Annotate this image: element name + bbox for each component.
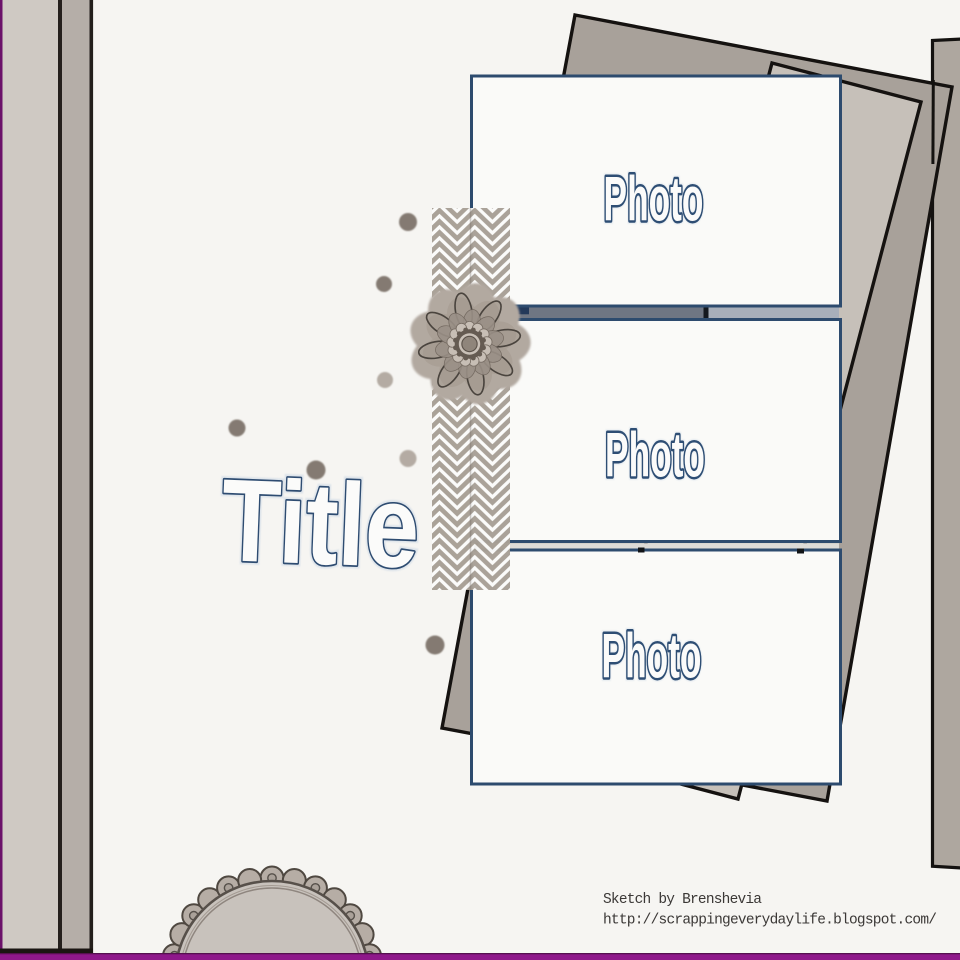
- svg-text:Photo: Photo: [605, 420, 705, 490]
- svg-text:Photo: Photo: [602, 621, 702, 691]
- svg-text:Sketch by Brenshevia: Sketch by Brenshevia: [603, 892, 762, 908]
- svg-text:Photo: Photo: [604, 164, 704, 234]
- svg-text:http://scrappingeverydaylife.b: http://scrappingeverydaylife.blogspot.co…: [603, 913, 937, 929]
- svg-text:Title: Title: [219, 455, 422, 593]
